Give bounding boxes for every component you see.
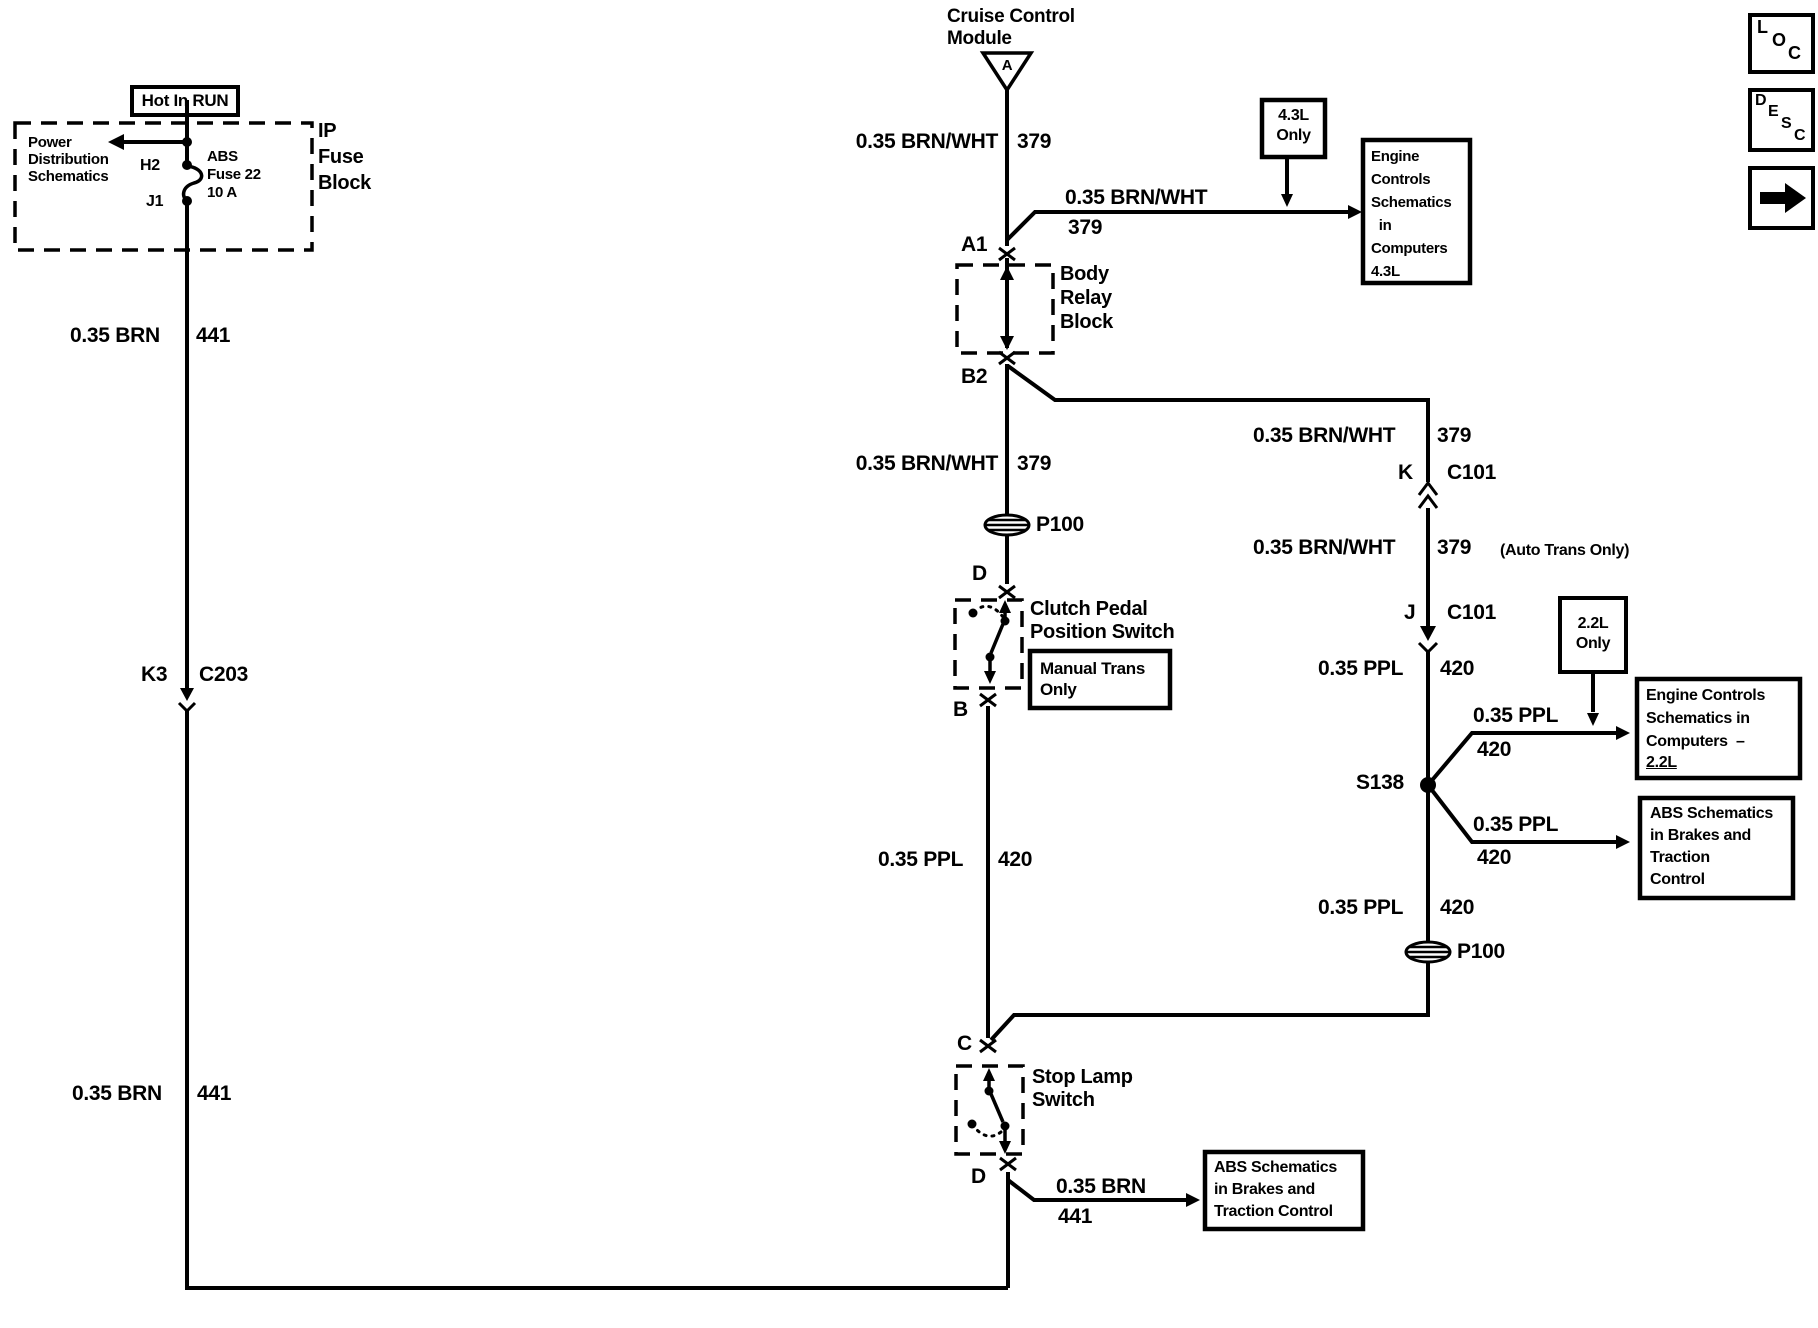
arrowhead-22l-tag: [1587, 713, 1599, 726]
fuse-abs-22-label: ABS Fuse 22 10 A: [207, 148, 261, 202]
clutch-switch-symbol: [976, 606, 1005, 672]
branch-abs-wire-spec: 0.35 PPL: [1473, 813, 1558, 837]
wiring-layer: [0, 0, 1818, 1328]
grommet-p100-center-label: P100: [1036, 513, 1084, 537]
out-wire-circuit: 441: [1058, 1205, 1092, 1229]
arrowhead-abs-dest: [1616, 835, 1630, 849]
rseg3-wire-spec: 0.35 PPL: [1318, 657, 1403, 681]
arrowhead-k3-conn: [180, 688, 194, 701]
arrowhead-43l-dest: [1348, 205, 1362, 219]
wire-s138-to-engine22: [1428, 733, 1616, 785]
branch-22l-wire-spec: 0.35 PPL: [1473, 704, 1558, 728]
stop-lamp-switch-symbol: [975, 1079, 1005, 1142]
power-distribution-label: Power Distribution Schematics: [28, 134, 109, 185]
splice-s138-dot: [1420, 777, 1436, 793]
rseg3-wire-circuit: 420: [1440, 657, 1474, 681]
conn-d2-pin-label: D: [971, 1165, 986, 1189]
loc-icon-letter-c: C: [1788, 43, 1801, 64]
ip-fuse-block-label: IP Fuse Block: [318, 118, 371, 196]
conn-c-mark: [980, 1040, 996, 1052]
conn-k3-pin-label: K3: [141, 663, 167, 687]
grommet-p100-center: [985, 515, 1029, 535]
left-upper-wire-spec: 0.35 BRN: [70, 324, 160, 348]
conn-d2-mark: [1000, 1158, 1016, 1170]
rseg4-wire-spec: 0.35 PPL: [1318, 896, 1403, 920]
desc-icon-letter-d: D: [1755, 92, 1767, 110]
wire-left-441-lower: [187, 711, 1008, 1288]
conn-j-c101-label: C101: [1447, 601, 1496, 625]
rseg4-wire-circuit: 420: [1440, 896, 1474, 920]
connector-marks: [179, 248, 1437, 1170]
left-lower-wire-spec: 0.35 BRN: [72, 1082, 162, 1106]
conn-j-pin-label: J: [1404, 601, 1415, 625]
branch-abs-wire-circuit: 420: [1477, 846, 1511, 870]
pin-h2-label: H2: [140, 155, 160, 177]
forward-arrow-icon: [1760, 183, 1806, 213]
conn-c-pin-label: C: [957, 1032, 972, 1056]
engine-22l-dest-label: Engine Controls Schematics in Computers …: [1646, 684, 1765, 753]
arrowhead-power-dist: [108, 134, 124, 150]
seg3-wire-spec: 0.35 PPL: [878, 848, 963, 872]
conn-k3-chevron: [179, 703, 195, 711]
arrowhead-abs-bottom-dest: [1186, 1193, 1200, 1207]
loc-icon-letter-l: L: [1757, 17, 1768, 38]
conn-k-pin-label: K: [1398, 461, 1413, 485]
conn-j-chevron: [1419, 643, 1437, 652]
wire-right-return: [991, 961, 1428, 1040]
hot-in-run-label: Hot In RUN: [132, 90, 238, 111]
clutch-pedal-switch-label: Clutch Pedal Position Switch: [1030, 598, 1174, 644]
wiring-diagram-page: Hot In RUN Power Distribution Schematics…: [0, 0, 1818, 1328]
conn-k-chevron-1: [1419, 483, 1437, 495]
arrowhead-clutch-down: [984, 671, 996, 684]
pin-j1-label: J1: [146, 191, 163, 213]
seg2-wire-spec: 0.35 BRN/WHT: [830, 452, 998, 476]
abs-right-dest-label: ABS Schematics in Brakes and Traction Co…: [1650, 803, 1773, 891]
conn-d-mark: [999, 586, 1015, 598]
rseg1-wire-spec: 0.35 BRN/WHT: [1253, 424, 1395, 448]
rseg1-wire-circuit: 379: [1437, 424, 1471, 448]
arrowhead-relay-down: [1000, 336, 1014, 350]
left-upper-wire-circuit: 441: [196, 324, 230, 348]
desc-icon-letter-c: C: [1794, 127, 1806, 145]
arrowhead-stop-down: [999, 1141, 1011, 1154]
branch-43l-wire-circuit: 379: [1068, 216, 1102, 240]
wire-branch-43l: [1007, 212, 1350, 240]
out-wire-spec: 0.35 BRN: [1056, 1175, 1146, 1199]
engine-22l-dest-sub-label: 2.2L: [1646, 752, 1677, 774]
seg1-wire-circuit: 379: [1017, 130, 1051, 154]
desc-icon-letter-e: E: [1768, 103, 1779, 121]
arrowhead-relay-up: [1000, 266, 1014, 280]
arrowhead-43l-tag: [1281, 194, 1293, 207]
junction-dots: [182, 137, 1436, 1131]
conn-k-chevron-2: [1419, 496, 1437, 508]
branch-43l-wire-spec: 0.35 BRN/WHT: [1065, 186, 1207, 210]
tag-22l-only-label: 2.2L Only: [1560, 614, 1626, 654]
dashed-boxes: [15, 123, 1053, 1154]
cruise-module-label: Cruise Control Module: [947, 6, 1075, 50]
seg1-wire-spec: 0.35 BRN/WHT: [830, 130, 998, 154]
grommet-p100-right-label: P100: [1457, 940, 1505, 964]
branch-22l-wire-circuit: 420: [1477, 738, 1511, 762]
conn-a1-pin-label: A1: [961, 233, 987, 257]
desc-icon-letter-s: S: [1781, 115, 1792, 133]
splice-s138-label: S138: [1356, 771, 1404, 795]
grommet-p100-right: [1406, 942, 1450, 962]
rseg2-wire-circuit: 379: [1437, 536, 1471, 560]
conn-b2-pin-label: B2: [961, 365, 987, 389]
conn-b-mark: [980, 694, 996, 706]
body-relay-block-label: Body Relay Block: [1060, 262, 1113, 334]
left-lower-wire-circuit: 441: [197, 1082, 231, 1106]
arrowhead-j-conn: [1420, 626, 1436, 641]
rseg2-wire-spec: 0.35 BRN/WHT: [1253, 536, 1395, 560]
fuse-symbol: [184, 166, 202, 200]
loc-icon-letter-o: O: [1772, 30, 1786, 51]
arrowhead-22l-dest: [1616, 726, 1630, 740]
stop-lamp-switch-label: Stop Lamp Switch: [1032, 1066, 1133, 1112]
auto-trans-only-note: (Auto Trans Only): [1500, 540, 1629, 562]
conn-d-pin-label: D: [972, 562, 987, 586]
seg2-wire-circuit: 379: [1017, 452, 1051, 476]
manual-trans-only-label: Manual Trans Only: [1040, 658, 1145, 700]
cruise-pin-a-label: A: [997, 54, 1017, 78]
tag-43l-only-label: 4.3L Only: [1262, 106, 1325, 146]
conn-c203-label: C203: [199, 663, 248, 687]
seg3-wire-circuit: 420: [998, 848, 1032, 872]
conn-b-pin-label: B: [953, 698, 968, 722]
conn-k-c101-label: C101: [1447, 461, 1496, 485]
solid-boxes: [132, 87, 1800, 1229]
abs-bottom-dest-label: ABS Schematics in Brakes and Traction Co…: [1214, 1157, 1337, 1223]
engine-43l-dest-label: Engine Controls Schematics in Computers …: [1371, 145, 1451, 283]
